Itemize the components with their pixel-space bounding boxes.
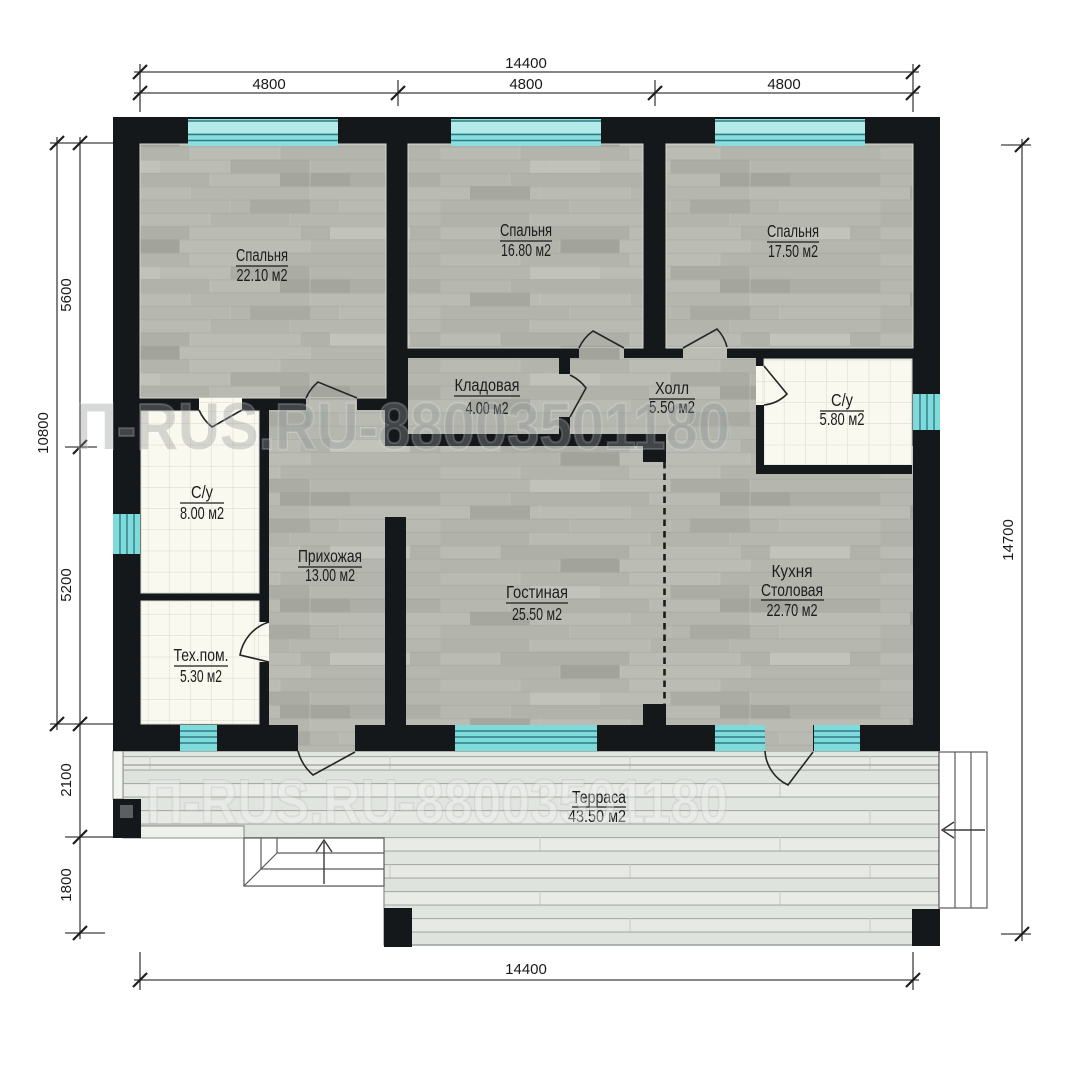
svg-text:Прихожая: Прихожая: [298, 546, 362, 566]
svg-text:1800: 1800: [58, 868, 75, 901]
svg-text:С/у: С/у: [191, 482, 213, 502]
svg-text:4800: 4800: [767, 76, 800, 93]
svg-text:Кухня: Кухня: [772, 561, 813, 581]
svg-text:8.00 м2: 8.00 м2: [180, 503, 224, 523]
svg-text:4800: 4800: [252, 76, 285, 93]
svg-text:5600: 5600: [58, 278, 75, 311]
svg-text:14400: 14400: [505, 961, 547, 978]
svg-text:22.10 м2: 22.10 м2: [237, 265, 288, 285]
svg-text:14400: 14400: [505, 55, 547, 72]
svg-text:25.50 м2: 25.50 м2: [512, 604, 562, 624]
svg-text:5.30 м2: 5.30 м2: [180, 666, 222, 686]
svg-text:Тех.пом.: Тех.пом.: [174, 645, 229, 665]
svg-text:2100: 2100: [58, 763, 75, 796]
svg-text:16.80 м2: 16.80 м2: [501, 240, 551, 260]
svg-text:Гостиная: Гостиная: [506, 582, 568, 602]
svg-text:Спальня: Спальня: [500, 220, 552, 240]
svg-text:14700: 14700: [1000, 519, 1017, 561]
svg-text:П-RUS.RU-88003501180: П-RUS.RU-88003501180: [75, 389, 730, 463]
svg-text:10800: 10800: [35, 412, 52, 454]
svg-text:5.80 м2: 5.80 м2: [820, 409, 865, 429]
svg-text:17.50 м2: 17.50 м2: [768, 241, 818, 261]
svg-text:Спальня: Спальня: [767, 221, 819, 241]
svg-text:4800: 4800: [509, 76, 542, 93]
svg-text:13.00 м2: 13.00 м2: [305, 565, 355, 585]
svg-text:22.70 м2: 22.70 м2: [767, 600, 818, 620]
svg-text:Спальня: Спальня: [236, 245, 288, 265]
svg-text:5200: 5200: [58, 568, 75, 601]
svg-text:П-RUS.RU-88003501180: П-RUS.RU-88003501180: [146, 768, 728, 837]
svg-text:С/у: С/у: [831, 390, 853, 410]
svg-text:Столовая: Столовая: [761, 580, 823, 600]
